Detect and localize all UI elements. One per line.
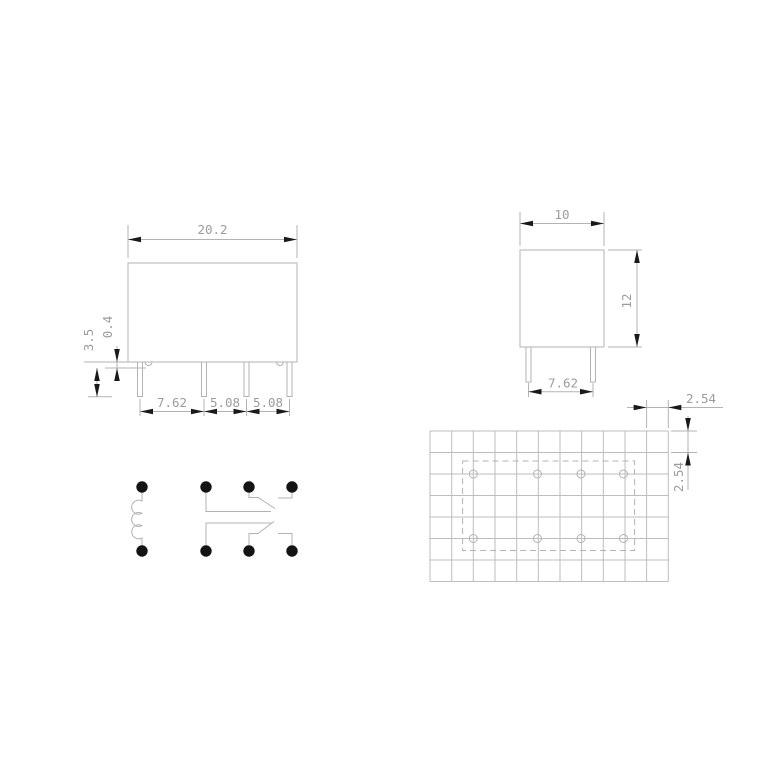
dim-side-height: 12 (608, 250, 642, 347)
pin-dot (243, 545, 254, 556)
arrow-up-icon (114, 368, 120, 381)
dim-side-pin-pitch: 7.62 (529, 376, 594, 398)
arrow-right-icon (591, 221, 604, 227)
pin-dot (243, 481, 254, 492)
relay-technical-drawing: 20.2 0.4 3.5 7.62 5.08 5.08 (0, 0, 773, 773)
arrow-down-icon (634, 334, 640, 347)
arrow-up-icon (634, 250, 640, 263)
pin-dot (136, 545, 147, 556)
contact-blade-bottom (249, 522, 274, 546)
front-pin-1 (138, 362, 143, 397)
grid-lines (430, 431, 668, 582)
coil-symbol (132, 492, 142, 546)
arrow-left-icon (529, 389, 542, 395)
drawing-canvas: 20.2 0.4 3.5 7.62 5.08 5.08 (0, 0, 773, 773)
contact-common-top (206, 493, 271, 512)
dim-label-standoff: 0.4 (100, 316, 115, 339)
arrow-left-icon (128, 237, 141, 243)
dim-grid-pitch-x: 2.54 (627, 391, 723, 428)
front-pin-2 (202, 362, 207, 397)
side-view: 10 12 7.62 (520, 207, 642, 397)
contact-blade-top (249, 493, 275, 509)
dim-label-body-width: 20.2 (197, 222, 227, 237)
dim-label-grid-x: 2.54 (686, 391, 716, 406)
side-pin-2 (591, 347, 596, 382)
pin-dot (200, 545, 211, 556)
front-view: 20.2 0.4 3.5 7.62 5.08 5.08 (81, 222, 297, 416)
pcb-layout: 2.54 2.54 (430, 391, 723, 582)
dim-label-pitch-3: 5.08 (253, 395, 283, 410)
relay-body-side (520, 250, 604, 347)
arrow-left-icon (668, 405, 681, 411)
dim-label-side-pitch: 7.62 (548, 376, 578, 391)
dim-label-depth: 10 (554, 207, 569, 222)
arrow-down-icon (94, 384, 100, 397)
arrow-up-icon (94, 368, 100, 381)
side-pin-1 (526, 347, 531, 382)
arrow-left-icon (140, 409, 153, 415)
pin-dot (286, 545, 297, 556)
dim-side-depth: 10 (520, 207, 604, 246)
dim-label-pitch-1: 7.62 (157, 395, 187, 410)
pin-dot (286, 481, 297, 492)
arrow-right-icon (634, 405, 647, 411)
arrow-down-icon (114, 349, 120, 362)
dim-label-pin-length: 3.5 (81, 329, 96, 352)
arrow-left-icon (520, 221, 533, 227)
arrow-right-icon (580, 389, 593, 395)
contact-no-top (278, 493, 292, 498)
dim-label-grid-y: 2.54 (671, 462, 686, 492)
contact-no-bottom (278, 534, 292, 546)
dim-front-body-width: 20.2 (128, 222, 297, 258)
front-pin-3 (244, 362, 249, 397)
front-pin-4 (287, 362, 292, 397)
dim-label-pitch-2: 5.08 (210, 395, 240, 410)
arrow-right-icon (191, 409, 204, 415)
dim-label-height: 12 (619, 293, 634, 308)
dim-grid-pitch-y: 2.54 (671, 416, 697, 492)
arrow-up-icon (685, 453, 691, 466)
pin-dot (200, 481, 211, 492)
dim-front-pin-pitch: 7.62 5.08 5.08 (140, 395, 290, 416)
relay-body-front (128, 263, 297, 362)
standoff-pips (145, 362, 284, 366)
arrow-down-icon (685, 418, 691, 431)
arrow-right-icon (284, 237, 297, 243)
schematic (132, 481, 298, 556)
pin-dot (136, 481, 147, 492)
contact-common-bottom (206, 523, 271, 545)
